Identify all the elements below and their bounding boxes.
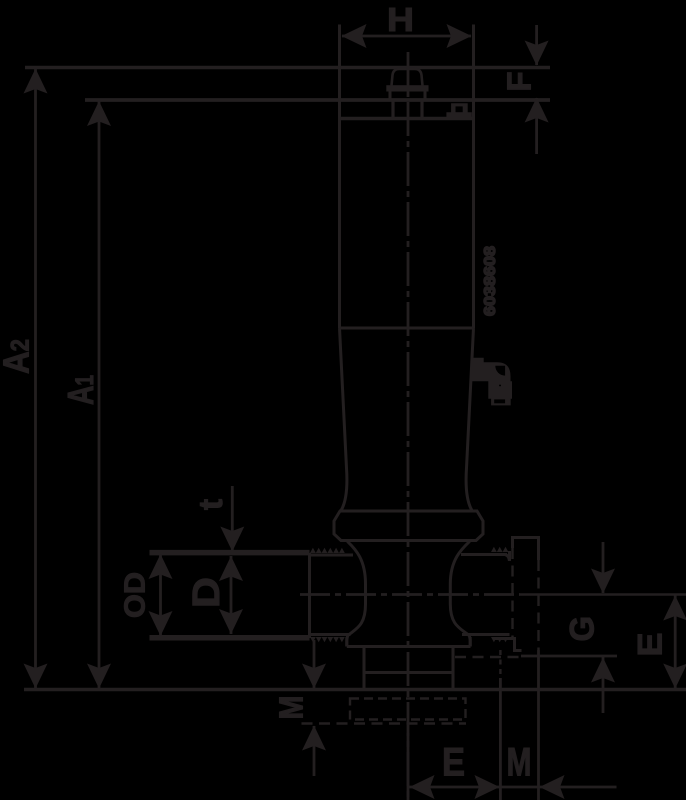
svg-text:H: H [387, 1, 414, 38]
svg-text:M: M [507, 741, 532, 785]
svg-text:M: M [272, 696, 309, 720]
svg-text:E: E [442, 741, 465, 785]
svg-text:E: E [632, 633, 670, 657]
svg-text:G: G [564, 616, 602, 642]
svg-text:6038608: 6038608 [482, 246, 499, 316]
svg-text:t: t [192, 499, 229, 510]
svg-text:D: D [186, 577, 228, 608]
svg-text:OD: OD [120, 572, 152, 618]
svg-text:F: F [501, 72, 538, 92]
